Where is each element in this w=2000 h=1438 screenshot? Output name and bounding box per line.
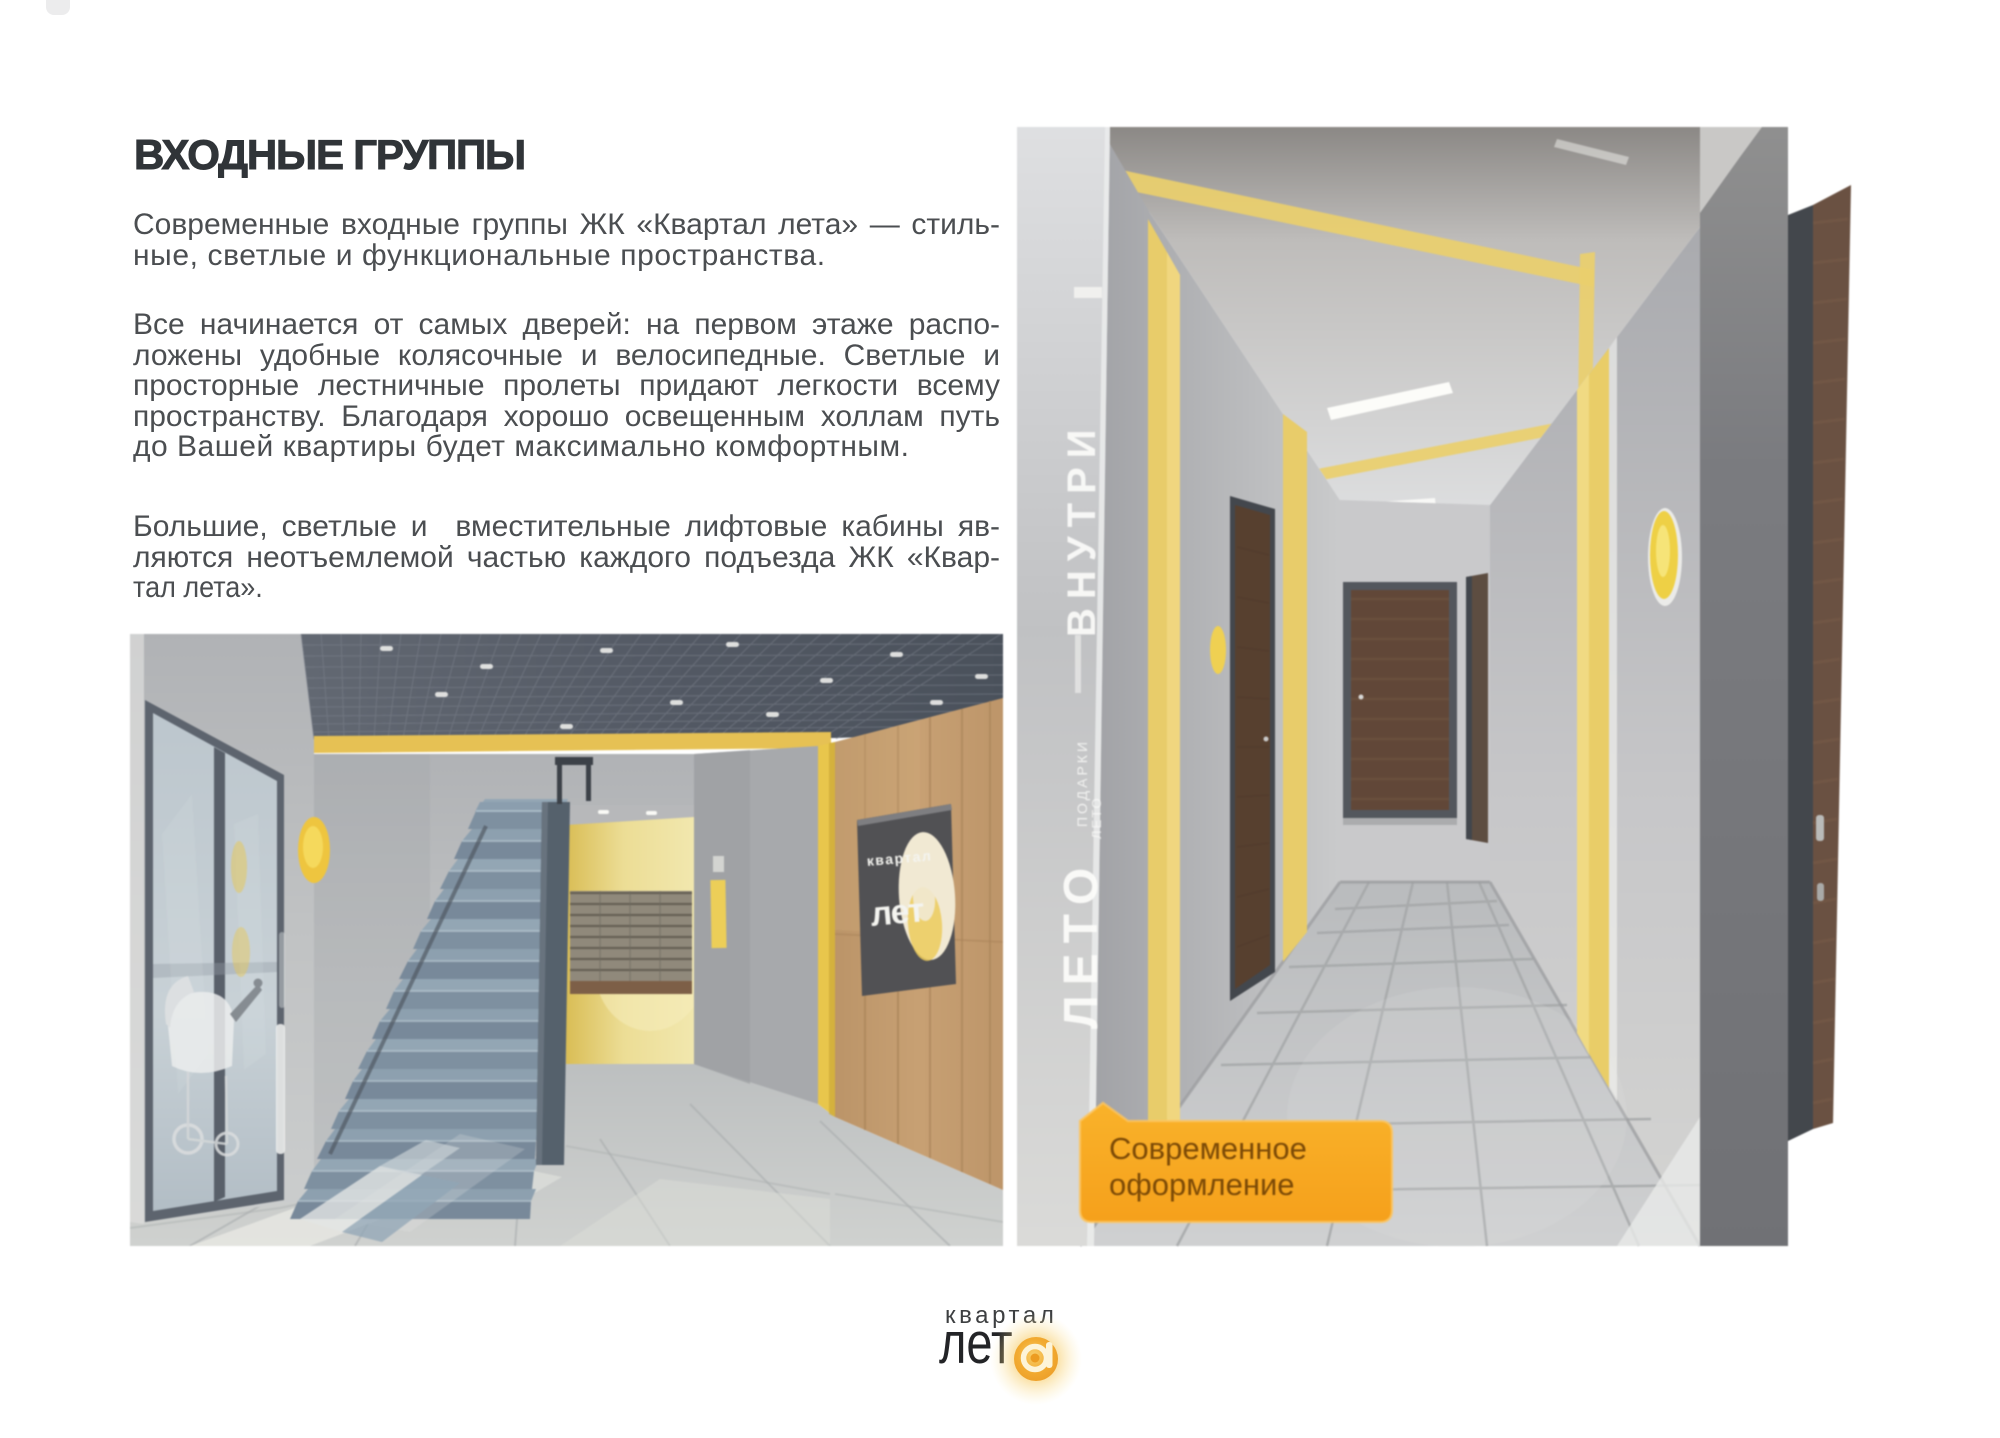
svg-text:ЛЕТО: ЛЕТО <box>1089 796 1104 839</box>
svg-text:оформление: оформление <box>1109 1167 1295 1202</box>
svg-text:лет: лет <box>869 891 926 934</box>
svg-text:Современное: Современное <box>1109 1131 1307 1166</box>
svg-text:ПОДАРКИ: ПОДАРКИ <box>1074 739 1090 827</box>
svg-text:ЛЕТО: ЛЕТО <box>1055 858 1108 1029</box>
svg-text:ВНУТРИ: ВНУТРИ <box>1060 420 1104 637</box>
